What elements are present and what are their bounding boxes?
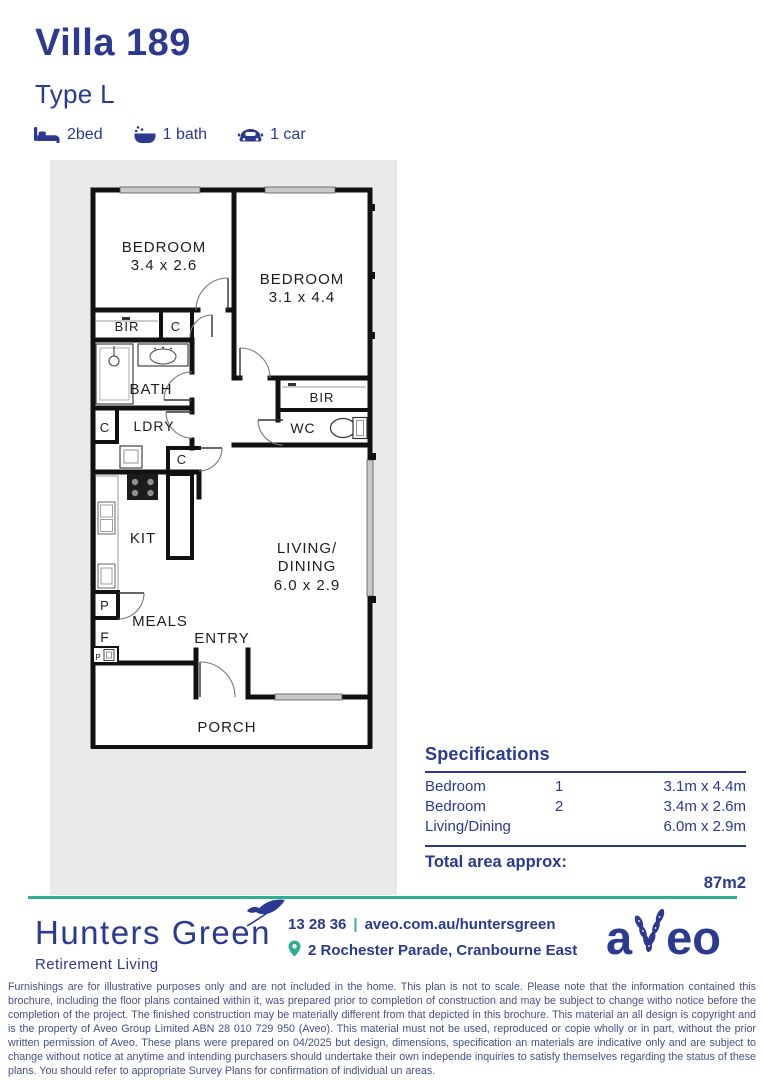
porch-label: PORCH: [197, 719, 256, 736]
contact-line-1: 13 28 36 | aveo.com.au/huntersgreen: [288, 916, 577, 933]
specs-divider-bottom: [425, 845, 746, 847]
feature-beds-label: 2bed: [67, 126, 103, 144]
kitchen-bench: [168, 474, 192, 558]
brand-subtitle: Retirement Living: [35, 956, 271, 973]
ldry-label: LDRY: [133, 418, 174, 434]
spec-row: Bedroom 2 3.4m x 2.6m: [425, 798, 746, 815]
address: 2 Rochester Parade, Cranbourne East: [308, 942, 577, 959]
phone-number: 13 28 36: [288, 916, 346, 933]
spec-name: Living/Dining: [425, 818, 555, 835]
villa-title: Villa 189: [35, 22, 306, 65]
feature-row: 2bed 1 bath: [33, 125, 306, 144]
feature-baths-label: 1 bath: [163, 126, 207, 144]
spec-size: 3.1m x 4.4m: [650, 778, 746, 795]
page-header: Villa 189 Type L 2bed: [35, 22, 306, 144]
brochure-page: Villa 189 Type L 2bed: [0, 0, 764, 1080]
floorplan-panel: BEDROOM 3.4 x 2.6 BEDROOM 3.1 x 4.4 BIR …: [50, 160, 397, 895]
spec-row: Bedroom 1 3.1m x 4.4m: [425, 778, 746, 795]
aveo-logo-a: a: [606, 914, 632, 961]
brand-block: Hunters Green Retirement Living: [35, 914, 271, 973]
bir1-label: BIR: [115, 319, 140, 334]
separator: |: [353, 916, 357, 933]
car-icon: [237, 126, 264, 143]
wc-label: WC: [290, 420, 315, 436]
meals-label: MEALS: [132, 613, 188, 630]
bed-icon: [33, 126, 61, 143]
living-dims: 6.0 x 2.9: [274, 577, 341, 594]
entry-label: ENTRY: [194, 630, 250, 647]
aveo-logo: a eo: [606, 908, 721, 961]
fridge-label: F: [100, 629, 110, 645]
feature-cars-label: 1 car: [270, 126, 306, 144]
spec-name: Bedroom: [425, 778, 555, 795]
feature-beds: 2bed: [33, 126, 103, 144]
disclaimer-text: Furnishings are for illustrative purpose…: [8, 980, 756, 1078]
aveo-logo-eo: eo: [666, 914, 721, 961]
website-link[interactable]: aveo.com.au/huntersgreen: [365, 916, 556, 933]
footer-divider: [28, 896, 737, 899]
bedroom2-dims: 3.1 x 4.4: [269, 289, 336, 306]
rail-tick: [288, 383, 296, 386]
specifications: Specifications Bedroom 1 3.1m x 4.4m Bed…: [425, 744, 746, 893]
feature-cars: 1 car: [237, 126, 306, 144]
bir2-label: BIR: [310, 390, 335, 405]
living-label-1: LIVING/: [277, 540, 337, 557]
cupboard2-label: C: [100, 420, 110, 435]
pantry-label: P: [100, 598, 110, 613]
spec-size: 3.4m x 2.6m: [650, 798, 746, 815]
spec-row: Living/Dining 6.0m x 2.9m: [425, 818, 746, 835]
pantry-small-label: P: [95, 653, 101, 662]
cupboard3-label: C: [177, 452, 187, 467]
brand-text: Hunters Green: [35, 914, 271, 951]
spec-number: 2: [555, 798, 650, 815]
spec-number: 1: [555, 778, 650, 795]
stove: [127, 474, 158, 500]
floorplan-drawing: BEDROOM 3.4 x 2.6 BEDROOM 3.1 x 4.4 BIR …: [50, 160, 397, 895]
contact-line-2: 2 Rochester Parade, Cranbourne East: [288, 940, 577, 961]
contact-block: 13 28 36 | aveo.com.au/huntersgreen 2 Ro…: [288, 916, 577, 968]
total-area-label: Total area approx:: [425, 853, 746, 872]
toilet: [331, 418, 368, 439]
living-label-2: DINING: [278, 558, 337, 575]
spec-name: Bedroom: [425, 798, 555, 815]
bath-icon: [133, 125, 157, 144]
aveo-leaf-v-icon: [632, 908, 666, 961]
feature-baths: 1 bath: [133, 125, 207, 144]
kit-label: KIT: [130, 530, 156, 547]
spec-number: [555, 818, 650, 835]
cupboard1-label: C: [171, 319, 181, 334]
total-area-value: 87m2: [425, 874, 746, 893]
villa-type: Type L: [35, 79, 306, 110]
bedroom1-label: BEDROOM: [122, 239, 207, 256]
map-pin-icon: [288, 940, 301, 961]
leaf-icon: [245, 898, 287, 936]
brand-name: Hunters Green: [35, 914, 271, 952]
bedroom2-label: BEDROOM: [260, 271, 345, 288]
specs-divider-top: [425, 771, 746, 773]
specifications-title: Specifications: [425, 744, 746, 765]
spec-size: 6.0m x 2.9m: [650, 818, 746, 835]
bath-label: BATH: [130, 381, 173, 398]
bedroom1-dims: 3.4 x 2.6: [131, 257, 198, 274]
